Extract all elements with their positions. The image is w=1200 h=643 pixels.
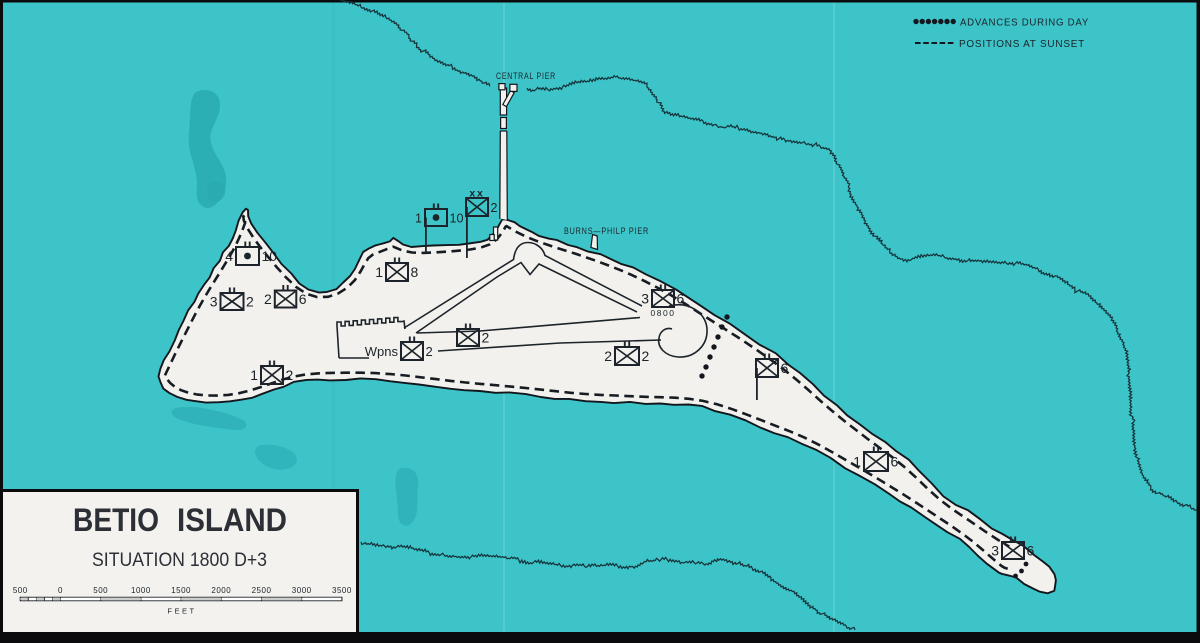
svg-text:2: 2 [604, 348, 612, 364]
svg-text:6: 6 [891, 454, 899, 470]
svg-text:2: 2 [246, 294, 254, 310]
svg-text:500: 500 [13, 586, 28, 595]
svg-text:POSITIONS AT SUNSET: POSITIONS AT SUNSET [959, 38, 1085, 50]
svg-text:BURNS—PHILP PIER: BURNS—PHILP PIER [564, 226, 649, 236]
svg-text:6: 6 [781, 360, 789, 376]
svg-text:10: 10 [262, 248, 278, 264]
svg-text:1: 1 [853, 454, 861, 470]
svg-text:1: 1 [375, 264, 383, 280]
svg-text:2: 2 [491, 201, 498, 215]
svg-text:0: 0 [58, 586, 63, 595]
svg-text:2: 2 [426, 344, 433, 359]
svg-text:0800: 0800 [651, 308, 676, 318]
svg-text:2000: 2000 [211, 586, 231, 595]
svg-text:Wpns: Wpns [365, 344, 399, 359]
svg-text:1: 1 [415, 212, 422, 226]
svg-text:ISLAND: ISLAND [177, 502, 287, 538]
svg-text:1000: 1000 [131, 586, 151, 595]
svg-text:6: 6 [677, 291, 685, 307]
svg-text:10: 10 [450, 212, 464, 226]
svg-text:3: 3 [210, 294, 218, 310]
svg-text:2: 2 [286, 367, 294, 383]
svg-text:3500: 3500 [332, 586, 352, 595]
svg-text:xx: xx [469, 188, 484, 200]
svg-text:2: 2 [642, 348, 650, 364]
svg-text:ADVANCES DURING DAY: ADVANCES DURING DAY [960, 17, 1089, 29]
svg-text:500: 500 [93, 586, 108, 595]
svg-text:1500: 1500 [171, 586, 191, 595]
svg-text:2: 2 [264, 291, 272, 307]
svg-text:SITUATION 1800 D+3: SITUATION 1800 D+3 [92, 550, 267, 571]
svg-text:FEET: FEET [167, 607, 196, 616]
svg-text:3000: 3000 [292, 586, 312, 595]
svg-text:BETIO: BETIO [73, 502, 159, 538]
svg-text:3: 3 [641, 291, 649, 307]
svg-text:CENTRAL PIER: CENTRAL PIER [496, 71, 556, 81]
svg-text:3: 3 [991, 543, 999, 559]
svg-text:6: 6 [299, 291, 307, 307]
svg-text:2500: 2500 [252, 586, 272, 595]
svg-text:2: 2 [482, 330, 490, 346]
svg-text:4: 4 [225, 248, 233, 264]
svg-text:1: 1 [250, 367, 258, 383]
svg-text:8: 8 [411, 264, 419, 280]
svg-text:6: 6 [1027, 543, 1035, 559]
